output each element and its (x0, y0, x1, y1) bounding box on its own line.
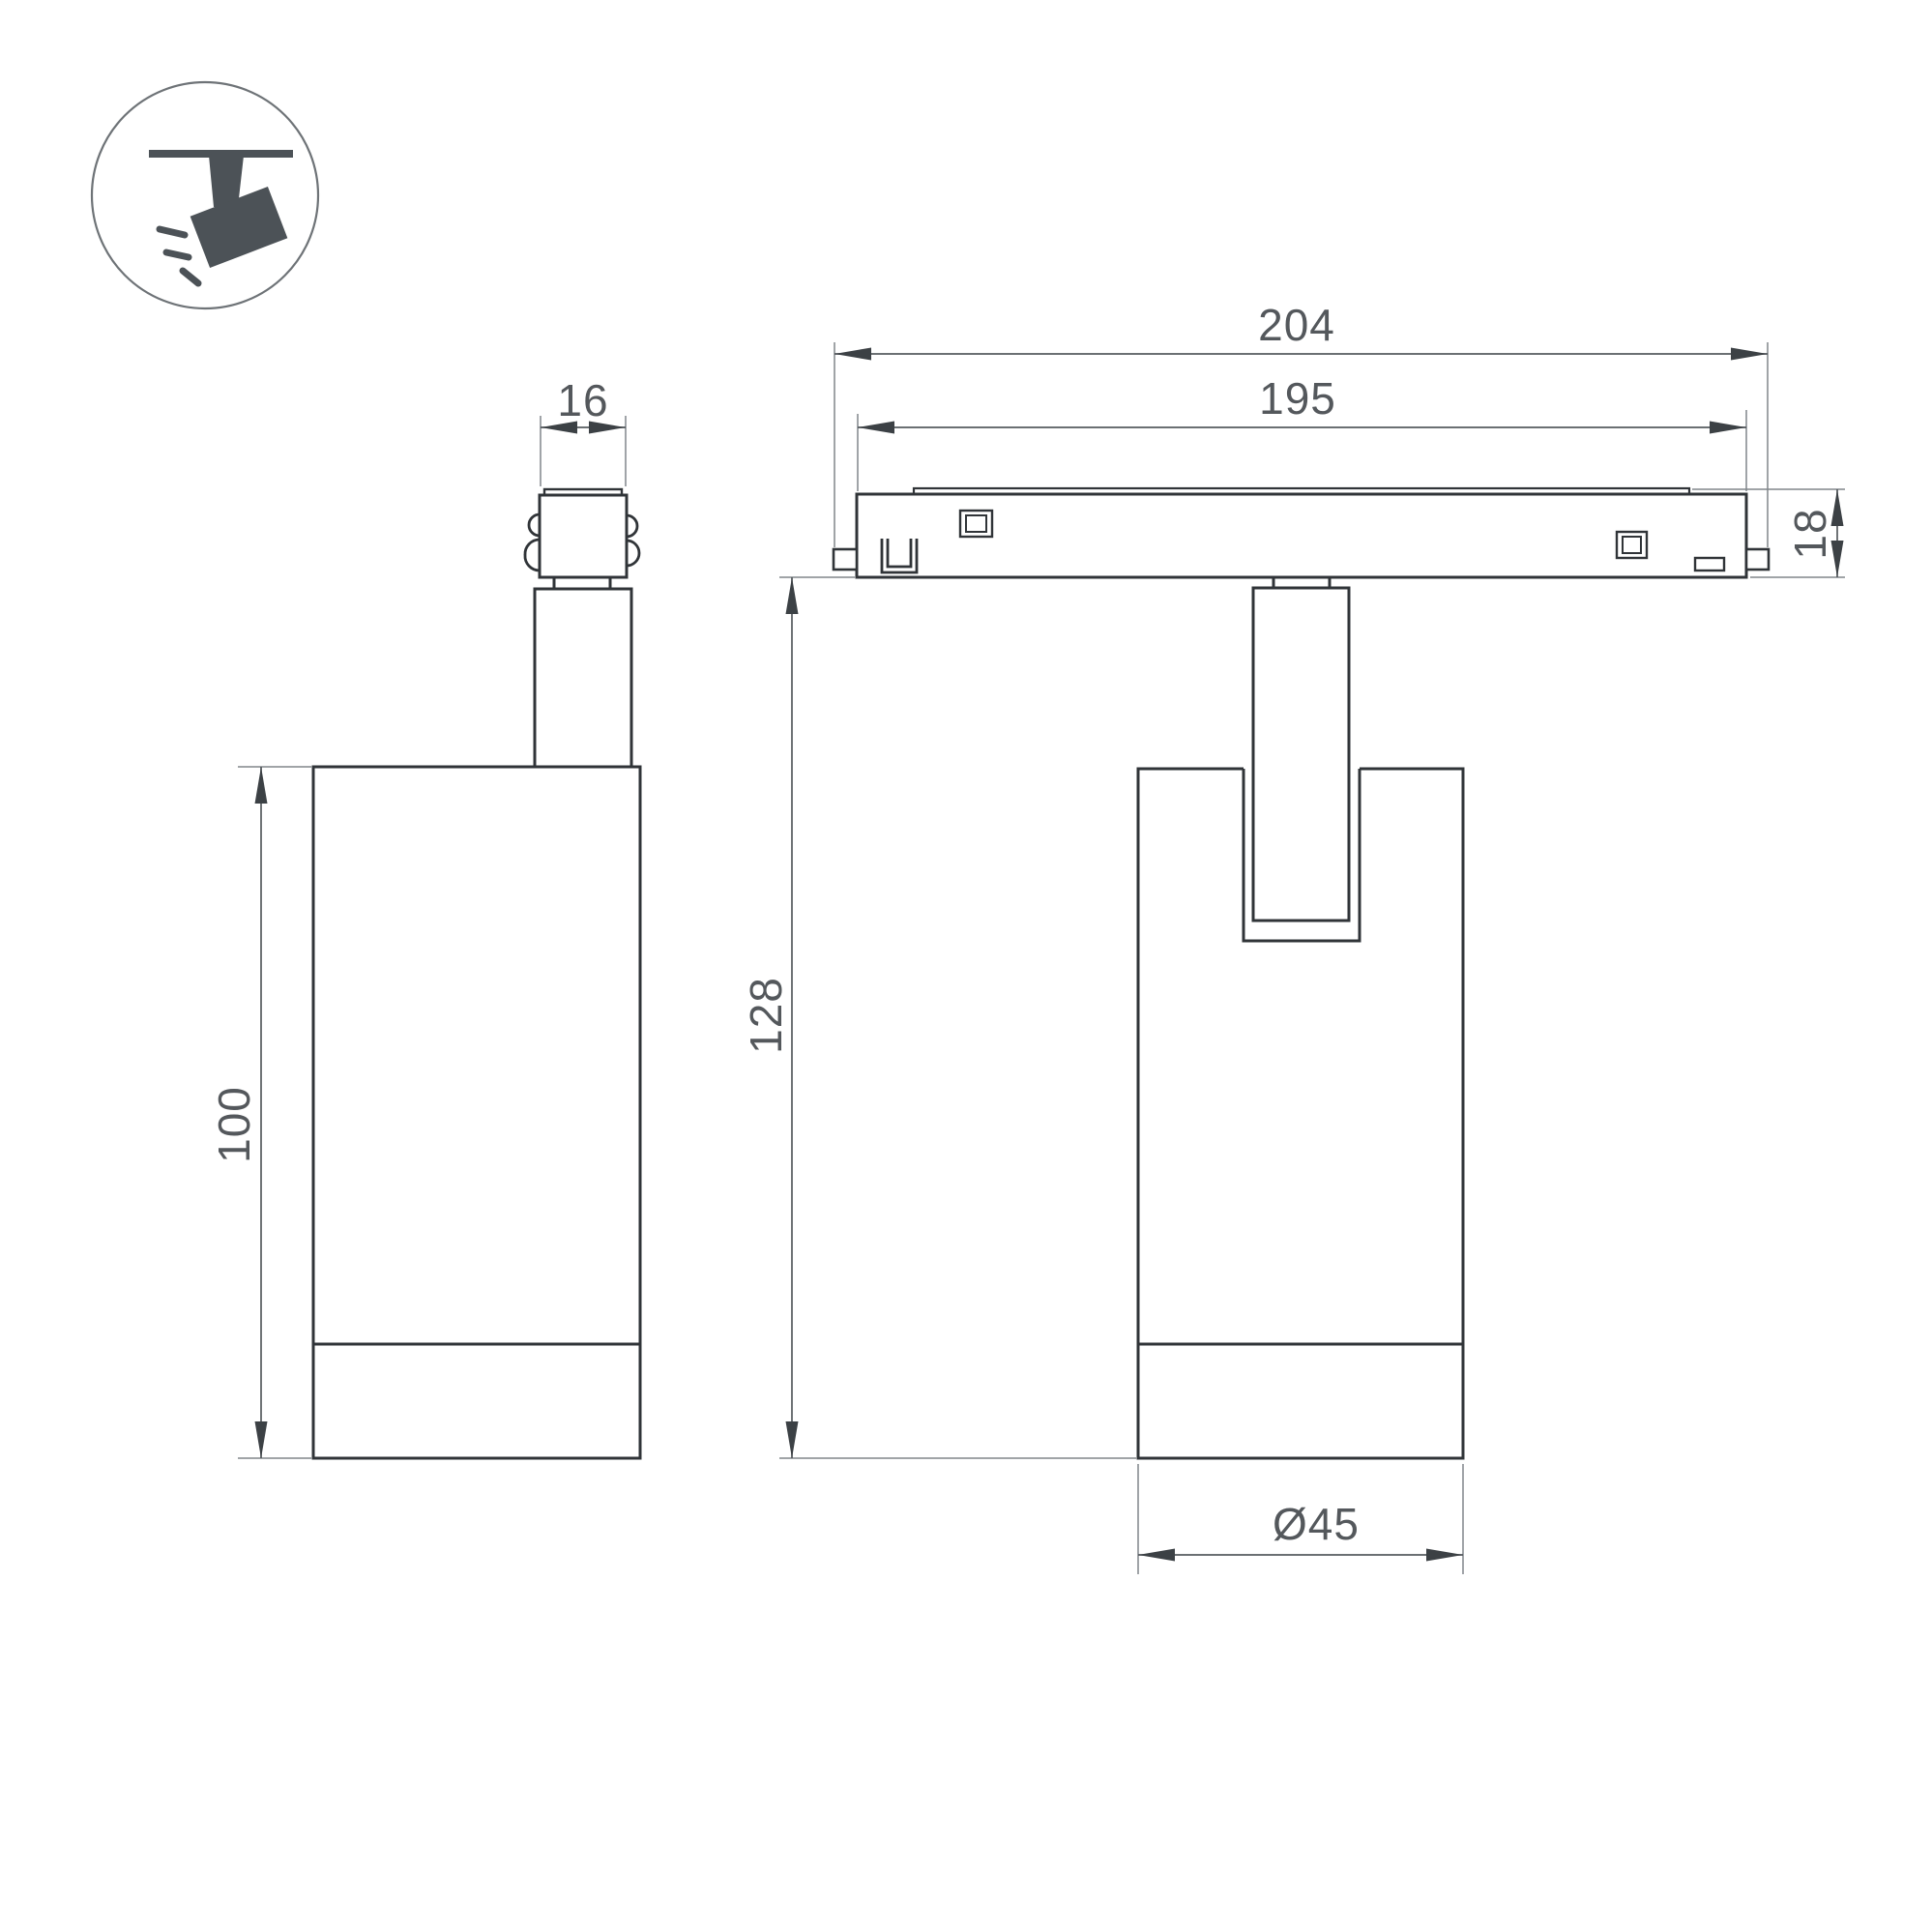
dim-label-track-height: 18 (1785, 508, 1835, 559)
track-left-clip (834, 549, 857, 570)
arrowhead (255, 767, 268, 804)
arrowhead (255, 1421, 268, 1458)
light-ray (166, 252, 189, 257)
drawing-page: 16 204 195 18 128 100 Ø45 (0, 0, 1932, 1932)
track-right-clip (1746, 549, 1769, 570)
dim-label-track-outer: 204 (1258, 300, 1335, 350)
legend-circle (92, 82, 318, 308)
stem-front (1253, 588, 1349, 921)
dimension-drawing: 16 204 195 18 128 100 Ø45 (0, 0, 1932, 1932)
legend-icon (92, 82, 318, 308)
collar-side (554, 577, 610, 589)
dim-label-body-diameter: Ø45 (1273, 1499, 1360, 1549)
track-slot-right (1695, 558, 1724, 571)
track-window-right-inner (1623, 537, 1641, 553)
body-side (313, 767, 640, 1458)
adapter-block (540, 495, 627, 577)
clip-arc (627, 541, 639, 566)
dim-label-adapter-width: 16 (557, 375, 608, 425)
clip-arc (525, 540, 540, 571)
collar-front (1273, 577, 1330, 588)
front-view (834, 488, 1769, 1458)
clip-arc (627, 515, 637, 537)
arrowhead (834, 348, 871, 361)
arrowhead (1731, 348, 1768, 361)
arrowhead (1426, 1549, 1463, 1562)
light-rays-icon (160, 229, 198, 283)
lamp-head-icon (190, 187, 288, 268)
track-window-left-inner (966, 515, 986, 532)
arrowhead (1710, 422, 1746, 434)
arrowhead (786, 577, 799, 614)
arrowhead (1138, 1549, 1175, 1562)
dim-label-overall-height: 128 (741, 977, 791, 1054)
side-view (313, 489, 640, 1458)
stem-side (535, 589, 631, 767)
clip-arc (529, 514, 540, 536)
dim-label-track-inner: 195 (1259, 373, 1336, 424)
arrowhead (858, 422, 894, 434)
light-ray (160, 229, 185, 235)
dim-label-body-height: 100 (209, 1086, 259, 1163)
light-ray (183, 271, 198, 283)
arrowhead (786, 1421, 799, 1458)
